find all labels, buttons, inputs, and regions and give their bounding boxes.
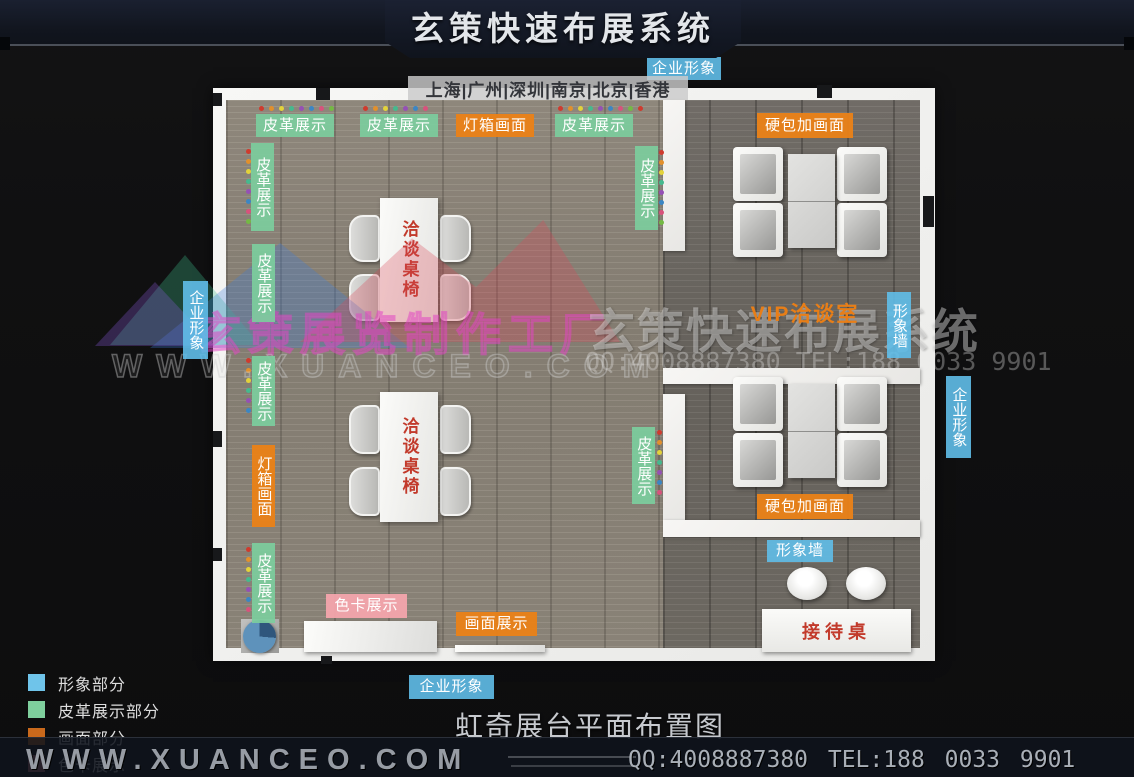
label-hardpack-top: 硬包加画面 (757, 113, 853, 138)
label-picture-display: 画面展示 (456, 612, 537, 636)
vip-armchair (837, 147, 887, 201)
legend-swatch (28, 701, 45, 718)
color-swatch-dot (246, 597, 251, 602)
label-colorcard-display: 色卡展示 (326, 594, 407, 618)
color-swatch-dot (246, 587, 251, 592)
color-swatch-dot (659, 190, 664, 195)
system-title: 玄策快速布展系统 (411, 2, 715, 50)
color-swatch-dot (289, 106, 294, 111)
color-swatch-dot (618, 106, 623, 111)
color-swatch-dot (657, 470, 662, 475)
color-swatch-dot (279, 106, 284, 111)
footer-divider-line (508, 756, 636, 758)
legend-label: 皮革展示部分 (58, 698, 160, 722)
label-leather-mid-2: 皮革展示 (632, 427, 655, 504)
color-swatch-dot (246, 358, 251, 363)
label-image-wall-vertical: 形象墙 (887, 292, 911, 358)
color-swatch-dot (246, 607, 251, 612)
color-swatch-dot (246, 547, 251, 552)
color-swatch-dot (246, 398, 251, 403)
legend-swatch (28, 674, 45, 691)
color-swatch-dot (403, 106, 408, 111)
chair (440, 467, 471, 516)
vip-armchair (837, 433, 887, 487)
banner-step-left (0, 37, 10, 50)
vip-coffee-table (788, 154, 835, 248)
footer-website: WWW.XUANCEO.COM (26, 744, 470, 777)
chair (440, 215, 471, 262)
vip-armchair (733, 377, 783, 431)
color-swatch-dot (246, 368, 251, 373)
vip-wall-bottom (663, 520, 920, 537)
color-swatch-dot (598, 106, 603, 111)
color-swatch-dot (299, 106, 304, 111)
chair (349, 467, 380, 516)
negotiation-table-label: 洽谈桌椅 (397, 417, 422, 497)
poster-canvas: 玄策快速布展系统 上海|广州|深圳|南京|北京|香港 洽谈桌椅 洽谈桌椅 (0, 0, 1134, 777)
color-swatch-dot (259, 106, 264, 111)
wall-pillar-mark (316, 88, 330, 100)
vip-coffee-table (788, 384, 835, 478)
color-swatch-dot (657, 480, 662, 485)
color-swatch-dot (423, 106, 428, 111)
color-swatch-dot (269, 106, 274, 111)
vip-armchair (733, 203, 783, 257)
negotiation-table-2: 洽谈桌椅 (380, 392, 438, 522)
color-swatch-dot (659, 200, 664, 205)
color-swatch-dot (608, 106, 613, 111)
color-swatch-dot (659, 220, 664, 225)
color-swatch-dot (657, 440, 662, 445)
chair (349, 215, 380, 262)
color-swatch-dot (659, 170, 664, 175)
color-swatch-dot (659, 210, 664, 215)
label-vip-room: VIP洽谈室 (750, 302, 860, 328)
color-swatch-dot (659, 160, 664, 165)
color-swatch-dot (329, 106, 334, 111)
wall-pillar-mark (321, 656, 332, 664)
label-leather-left-4: 皮革展示 (252, 543, 275, 623)
reception-desk: 接待桌 (762, 609, 911, 652)
label-lightbox-left: 灯箱画面 (252, 445, 275, 527)
color-swatch-dot (246, 408, 251, 413)
wall-pillar-mark (213, 548, 222, 561)
wall-pillar-mark (213, 431, 222, 447)
color-swatch-dot (659, 180, 664, 185)
color-swatch-dot (568, 106, 573, 111)
label-leather-left-2: 皮革展示 (252, 244, 275, 322)
legend-item: 皮革展示部分 (28, 701, 160, 718)
display-counter (304, 621, 437, 652)
chair (440, 405, 471, 454)
label-leather-left-3: 皮革展示 (252, 356, 275, 426)
color-swatch-dot (393, 106, 398, 111)
label-corp-image-right: 企业形象 (946, 376, 971, 458)
color-swatch-dot (657, 430, 662, 435)
color-swatch-dot (363, 106, 368, 111)
main-floor (226, 100, 663, 648)
wall-pillar-mark (817, 85, 832, 98)
label-lightbox-top: 灯箱画面 (456, 114, 534, 137)
color-swatch-dot (558, 106, 563, 111)
label-leather-mid-1: 皮革展示 (635, 146, 658, 230)
color-swatch-dot (246, 577, 251, 582)
color-swatch-dot (319, 106, 324, 111)
color-swatch-dot (657, 490, 662, 495)
label-corp-image-left: 企业形象 (183, 281, 208, 359)
header-banner-center: 玄策快速布展系统 (385, 0, 741, 58)
wall-pillar-mark (213, 93, 222, 106)
vip-armchair (733, 433, 783, 487)
ball-chair (243, 620, 276, 653)
cities-bar: 上海|广州|深圳|南京|北京|香港 (408, 76, 688, 100)
vip-armchair (837, 377, 887, 431)
vip-armchair (733, 147, 783, 201)
color-swatch-dot (246, 557, 251, 562)
color-swatch-dot (578, 106, 583, 111)
label-leather-top-2: 皮革展示 (360, 114, 438, 137)
reception-stool (846, 567, 886, 600)
label-leather-left-1: 皮革展示 (251, 143, 274, 231)
label-leather-top-1: 皮革展示 (256, 114, 334, 137)
color-swatch-dot (628, 106, 633, 111)
color-swatch-dot (638, 106, 643, 111)
color-swatch-dot (246, 567, 251, 572)
reception-stool (787, 567, 827, 600)
label-image-wall-horizontal: 形象墙 (767, 540, 833, 562)
color-swatch-dot (588, 106, 593, 111)
label-leather-top-3: 皮革展示 (555, 114, 633, 137)
color-swatch-dot (373, 106, 378, 111)
wall-pillar-mark (923, 196, 934, 227)
vip-wall-left-upper (663, 100, 685, 251)
label-corp-image-bottom: 企业形象 (409, 675, 494, 699)
color-swatch-dot (659, 150, 664, 155)
footer-bar: WWW.XUANCEO.COM QQ:4008887380 TEL:188 00… (0, 737, 1134, 777)
banner-step-right (1124, 37, 1134, 50)
color-swatch-dot (246, 378, 251, 383)
vip-armchair (837, 203, 887, 257)
legend-item: 形象部分 (28, 674, 160, 691)
legend-label: 形象部分 (58, 671, 126, 695)
color-swatch-dot (309, 106, 314, 111)
chair (349, 405, 380, 454)
vip-wall-left-lower (663, 394, 685, 520)
reception-desk-label: 接待桌 (802, 618, 871, 644)
footer-divider-line (511, 765, 635, 767)
color-swatch-dot (657, 460, 662, 465)
color-swatch-dot (246, 388, 251, 393)
plan-title: 虹奇展台平面布置图 (440, 705, 740, 739)
color-swatch-dot (657, 450, 662, 455)
display-strip (455, 645, 545, 652)
footer-contact: QQ:4008887380 TEL:188 0033 9901 (628, 747, 1075, 773)
label-hardpack-bottom: 硬包加画面 (757, 494, 853, 519)
color-swatch-dot (413, 106, 418, 111)
color-swatch-dot (383, 106, 388, 111)
